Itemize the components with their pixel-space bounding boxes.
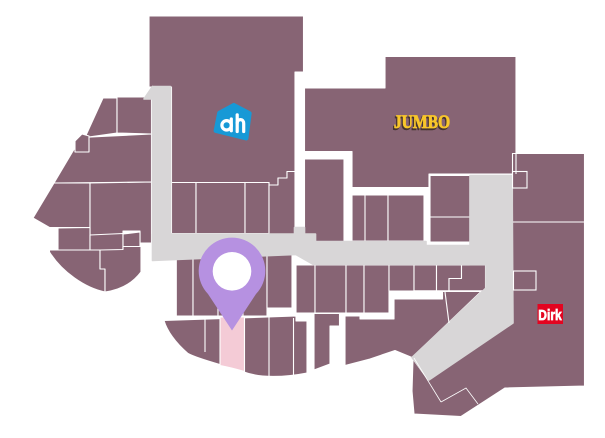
svg-text:JUMBO: JUMBO [394,112,450,133]
svg-text:Dirk: Dirk [538,307,562,323]
